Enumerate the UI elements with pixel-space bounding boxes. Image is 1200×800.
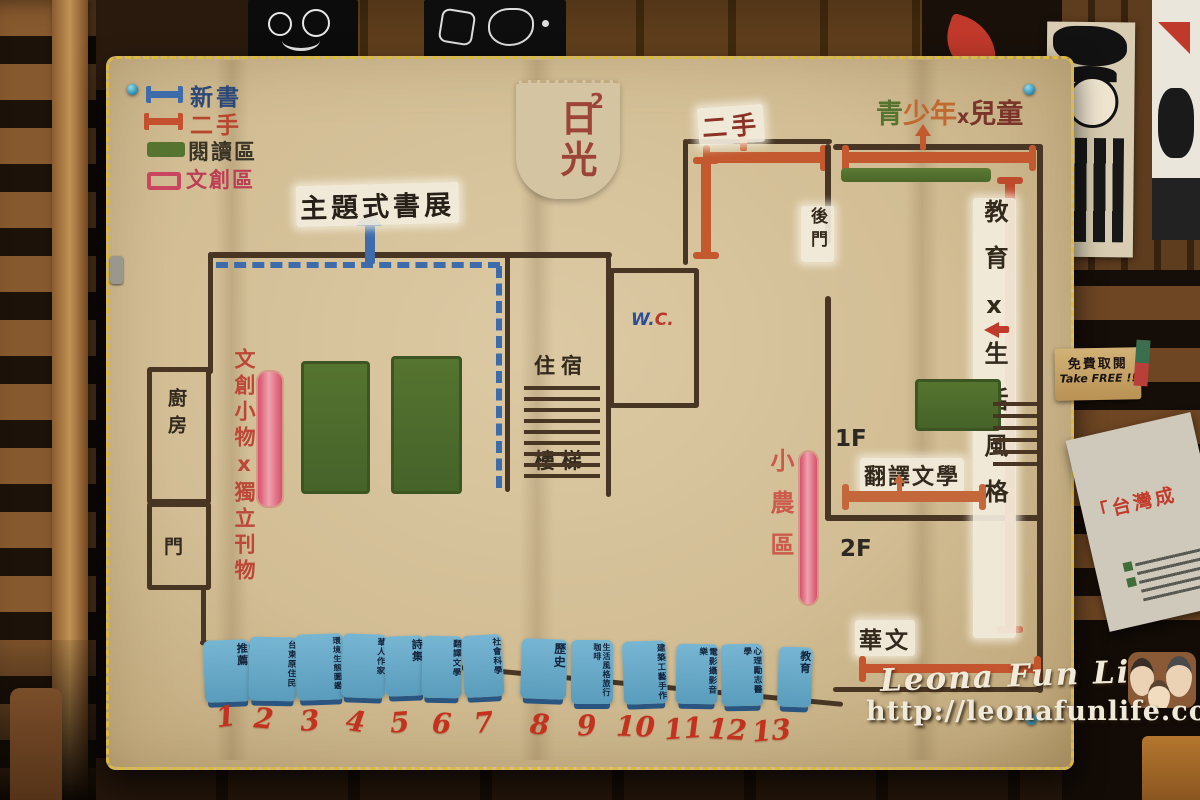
tag-number-3: 3 — [299, 703, 321, 738]
tag-number-2: 2 — [253, 701, 275, 736]
wood-corner-bottom-right — [1142, 736, 1200, 800]
tag-number-12: 12 — [707, 712, 748, 747]
door-label: 門 — [164, 532, 183, 559]
tag-number-13: 13 — [751, 712, 793, 748]
wc-label-c: C. — [655, 310, 674, 330]
flyer-text-lines — [1134, 543, 1200, 602]
secondhand-label: 二手 — [697, 104, 766, 147]
shelf-tag-12: 心理勵志醫學 — [720, 644, 763, 707]
room-wc — [609, 268, 699, 408]
wall-left-room-top — [210, 252, 612, 258]
take-free-english: Take FREE !! — [1055, 371, 1141, 385]
wall-left-bottom-joint — [201, 588, 206, 644]
take-free-chinese: 免費取閱 — [1055, 352, 1141, 372]
avatar-face-icon — [1166, 656, 1192, 697]
legend-label-cultural: 文創區 — [186, 164, 255, 194]
wall-left-room-left — [208, 252, 213, 374]
teen-label-x: x — [957, 106, 969, 128]
farmer-shelf-bar — [800, 452, 817, 604]
flyer-title: 「台灣成 — [1087, 480, 1179, 526]
shelf-tag-8: 歷史 — [520, 638, 568, 700]
back-door-label: 後門 — [801, 206, 834, 262]
poster-black-doodles — [424, 0, 566, 58]
floor2-label: 2F — [840, 536, 872, 562]
legend-swatch-new-books — [146, 86, 183, 103]
teen-shelf-bar — [845, 152, 1033, 163]
flyer-green-mark — [1126, 577, 1137, 588]
secondhand-shelf-top — [706, 152, 824, 163]
title-arrow-stem — [365, 224, 375, 264]
teen-reading-bar — [841, 168, 991, 182]
stairs-hatch-left — [524, 386, 600, 482]
wall-right-room-right — [1037, 144, 1043, 693]
poster-edge-right — [1152, 0, 1200, 240]
cultural-goods-shelf — [258, 372, 282, 506]
new-books-line-top — [216, 262, 500, 268]
flyer-green-mark — [1123, 561, 1134, 572]
wood-stool-leg — [10, 688, 62, 800]
push-pin — [127, 84, 138, 95]
shelf-tag-2: 台東原住民 — [248, 637, 297, 702]
tag-number-10: 10 — [615, 709, 655, 743]
wall-mid-lower — [825, 296, 831, 521]
secondhand-shelf-side — [701, 160, 711, 256]
wc-label-w: W. — [631, 310, 655, 330]
legend-label-secondhand: 二手 — [190, 106, 242, 140]
wall-corridor-left — [505, 252, 510, 492]
tag-number-7: 7 — [472, 705, 495, 740]
store-name: 日光 — [548, 99, 602, 193]
store-name-tag: 日光 2 — [516, 80, 620, 199]
poster-black-shape — [1158, 88, 1194, 158]
tag-number-9: 9 — [576, 709, 597, 743]
shelf-tag-4: 華人作家 — [341, 633, 387, 698]
legend-swatch-cultural — [147, 172, 181, 190]
shelf-tag-10: 建築工藝手作 — [622, 640, 668, 704]
poster-black-cat — [248, 0, 358, 63]
watermark-url: http://leonafunlife.com/blog — [866, 696, 1200, 727]
wall-secondhand-left — [683, 139, 688, 265]
cultural-goods-label: 文創小物x獨立刊物 — [229, 348, 259, 648]
metal-clip — [110, 256, 123, 284]
shelf-tag-3: 環境生態圖鑑 — [295, 633, 345, 701]
shelf-tag-6: 翻譯文學 — [421, 636, 462, 699]
teen-children-label: 青少年x兒童 — [876, 92, 1023, 131]
translated-shelf-bar — [845, 491, 983, 502]
poster-dark-band — [1152, 178, 1200, 240]
shelf-tag-7: 社會科學 — [461, 634, 504, 698]
stairs-hatch-right — [993, 402, 1037, 472]
legend-label-reading: 閱讀區 — [188, 136, 257, 166]
reading-table-right — [915, 379, 1001, 431]
reading-table — [301, 361, 370, 494]
reading-table — [391, 356, 462, 494]
map-title: 主題式書展 — [295, 182, 459, 227]
shelf-tag-5: 詩集 — [384, 635, 426, 696]
doodle-dot-icon — [542, 20, 549, 27]
poster-face-icon — [1066, 76, 1119, 129]
doodle-arc-icon — [282, 30, 320, 51]
take-free-sign: 免費取閱 Take FREE !! — [1055, 347, 1142, 400]
chinese-label: 華文 — [855, 620, 915, 656]
new-books-line-side — [496, 266, 502, 488]
farmer-label: 小農區 — [763, 448, 798, 598]
shelf-tag-11: 電影攝影音樂 — [675, 644, 718, 705]
shelf-tag-1: 推薦 — [203, 639, 251, 703]
tag-number-5: 5 — [389, 705, 411, 739]
kitchen-label: 廚房 — [163, 388, 190, 468]
teen-label-green: 青 — [876, 99, 903, 130]
wc-label: W.C. — [631, 310, 674, 330]
tag-number-8: 8 — [529, 707, 551, 741]
store-name-superscript: 2 — [590, 89, 604, 113]
poster-red-shape — [1158, 22, 1190, 54]
wall-right-room-top — [833, 144, 1043, 150]
shelf-tag-13: 教育 — [777, 646, 813, 707]
teen-arrow-stem — [920, 134, 926, 150]
push-pin — [1024, 84, 1035, 95]
doodle-shape-icon — [438, 8, 477, 47]
education-arrow-stem — [997, 326, 1009, 333]
photo-scene: 免費取閱 Take FREE !! 「台灣成 新書 二手 閱讀區 文創區 日光 … — [0, 0, 1200, 800]
legend-swatch-reading — [147, 142, 185, 157]
shelf-tag-9: 生活風格旅行咖啡 — [571, 640, 613, 704]
tag-number-11: 11 — [663, 711, 704, 747]
legend-swatch-secondhand — [144, 113, 183, 130]
teen-label-red: 兒童 — [969, 99, 1023, 130]
floor1-label: 1F — [835, 426, 867, 452]
stairs-label-line1: 住宿 — [534, 351, 588, 383]
doodle-shape-icon — [488, 8, 534, 46]
translated-label: 翻譯文學 — [860, 458, 964, 492]
tag-number-6: 6 — [431, 707, 452, 741]
